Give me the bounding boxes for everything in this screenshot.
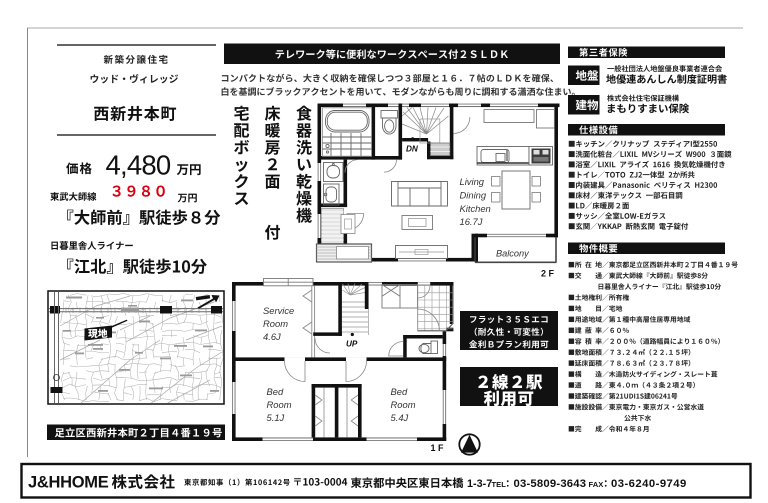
svg-text:Service: Service: [263, 305, 294, 316]
svg-text:DN: DN: [406, 145, 419, 154]
svg-text:03-5809-3643: 03-5809-3643: [514, 478, 587, 490]
svg-text:1 F: 1 F: [431, 443, 445, 453]
svg-text:Living: Living: [460, 176, 485, 187]
svg-text:1-3-7: 1-3-7: [467, 478, 492, 490]
svg-text:2 F: 2 F: [541, 269, 555, 279]
svg-text:Room: Room: [391, 399, 416, 410]
svg-text:FAX: FAX: [589, 480, 604, 489]
svg-text:03-6240-9749: 03-6240-9749: [611, 478, 687, 490]
svg-text:16.7J: 16.7J: [460, 216, 483, 227]
svg-text:Balcony: Balcony: [496, 249, 530, 259]
svg-text:Bed: Bed: [267, 386, 284, 397]
svg-text:5.4J: 5.4J: [391, 412, 409, 423]
svg-text:4,480: 4,480: [106, 150, 171, 181]
svg-text:UP: UP: [346, 340, 358, 349]
svg-text:Bed: Bed: [391, 386, 408, 397]
svg-text:Kitchen: Kitchen: [460, 203, 491, 214]
svg-text:TEL: TEL: [492, 480, 507, 489]
svg-text:4.6J: 4.6J: [263, 331, 281, 342]
svg-text:Room: Room: [263, 318, 288, 329]
svg-text:J&HHOME: J&HHOME: [28, 474, 109, 492]
svg-text:5.1J: 5.1J: [267, 412, 285, 423]
svg-text:Room: Room: [267, 399, 292, 410]
svg-text:Dining: Dining: [460, 190, 487, 201]
